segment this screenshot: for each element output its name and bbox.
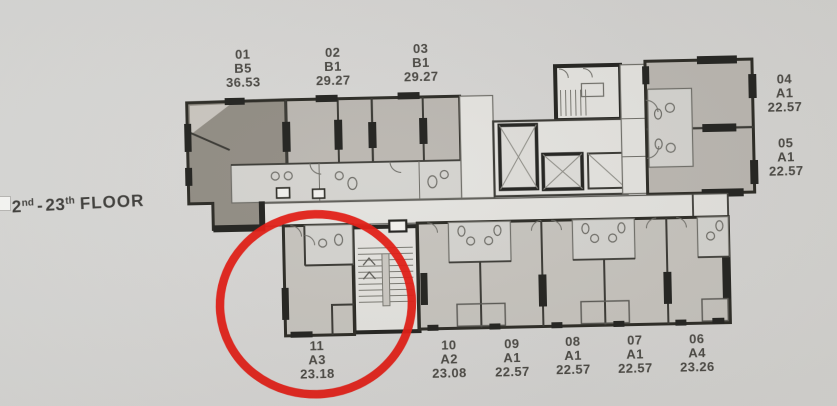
- floor-sup-start: nd: [21, 197, 34, 209]
- unit-label-11: 11 A3 23.18: [282, 339, 353, 382]
- bottom-unit-block: [417, 217, 731, 332]
- edge-legend-chip: [0, 196, 11, 211]
- floorplan-photo: 01 B5 36.53 02 B1 29.27 03 B1 29.27 04 A…: [0, 0, 837, 406]
- right-unit-block: [642, 55, 759, 198]
- unit-label-09: 09 A1 22.57: [477, 336, 548, 379]
- unit-label-07: 07 A1 22.57: [600, 333, 671, 376]
- unit-area: 22.57: [751, 164, 821, 179]
- unit-area: 36.53: [208, 75, 278, 90]
- unit-area: 23.18: [282, 367, 352, 382]
- unit-label-10: 10 A2 23.08: [414, 338, 485, 381]
- entry-hall: [460, 96, 495, 199]
- elevator-core: [493, 119, 628, 197]
- unit-label-03: 03 B1 29.27: [385, 41, 456, 84]
- unit-11-plan: [280, 224, 354, 337]
- unit-area: 23.26: [662, 360, 732, 375]
- unit-area: 29.27: [386, 69, 456, 84]
- floor-dash: -: [37, 196, 44, 215]
- floor-word: FLOOR: [79, 191, 144, 213]
- unit-area: 22.57: [477, 364, 547, 379]
- unit-label-02: 02 B1 29.27: [298, 45, 369, 88]
- floor-sup-end: th: [65, 195, 75, 206]
- unit-area: 22.57: [538, 362, 608, 377]
- unit-label-01: 01 B5 36.53: [208, 47, 279, 90]
- unit-label-05: 05 A1 22.57: [751, 136, 822, 179]
- unit-area: 22.57: [600, 361, 670, 376]
- unit-label-04: 04 A1 22.57: [749, 72, 820, 115]
- unit-area: 29.27: [298, 73, 368, 88]
- unit-label-08: 08 A1 22.57: [538, 334, 609, 377]
- unit-label-06: 06 A4 23.26: [662, 332, 733, 375]
- floor-num-end: 23: [45, 195, 66, 215]
- unit-area: 23.08: [414, 366, 484, 381]
- core-stairs: [555, 65, 621, 120]
- photo-tilt-layer: 01 B5 36.53 02 B1 29.27 03 B1 29.27 04 A…: [0, 0, 837, 406]
- unit-area: 22.57: [750, 100, 820, 115]
